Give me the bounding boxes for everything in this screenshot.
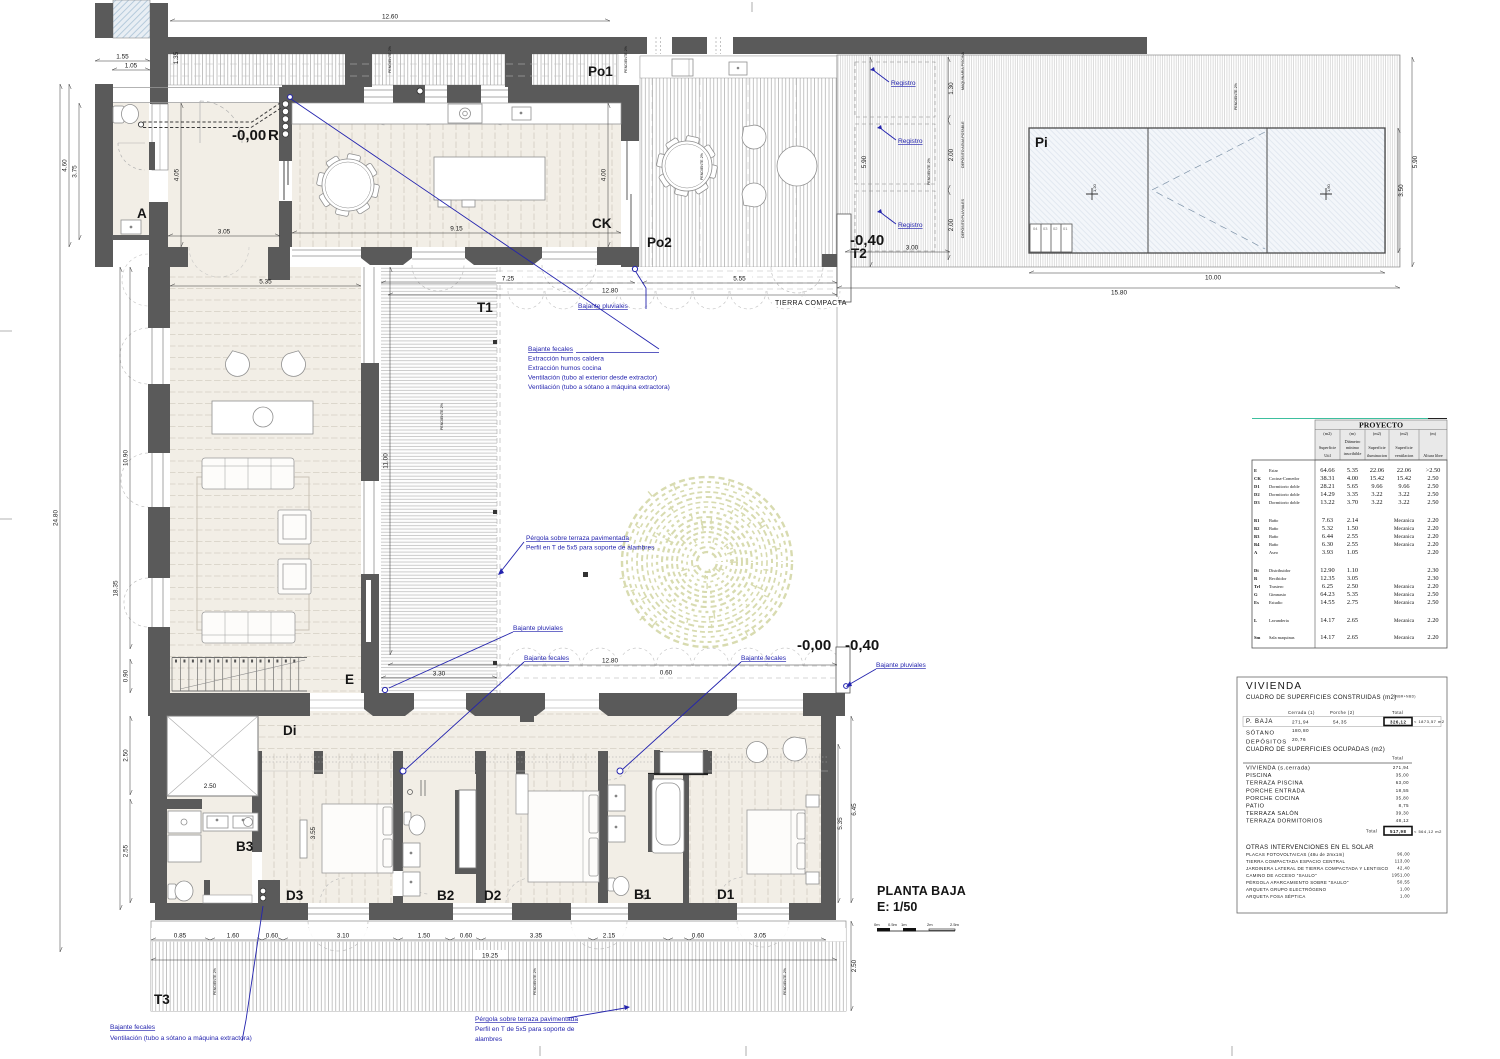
svg-text:PENDIENTE 2%: PENDIENTE 2% — [388, 45, 392, 73]
svg-text:Porche (2): Porche (2) — [1330, 710, 1355, 715]
svg-text:Bajante fecales: Bajante fecales — [741, 655, 787, 662]
svg-text:7.25: 7.25 — [502, 276, 515, 283]
svg-text:1951,00: 1951,00 — [1392, 873, 1411, 878]
svg-text:64.66: 64.66 — [1320, 467, 1334, 474]
svg-text:CUADRO DE SUPERFICIES OCUPADAS: CUADRO DE SUPERFICIES OCUPADAS (m2) — [1246, 746, 1385, 753]
svg-text:D1: D1 — [1254, 484, 1260, 489]
svg-text:3.22: 3.22 — [1371, 491, 1382, 498]
svg-text:inscribible: inscribible — [1344, 451, 1362, 456]
svg-text:B3: B3 — [1254, 534, 1260, 539]
svg-text:2.50: 2.50 — [851, 959, 858, 972]
svg-text:Registro: Registro — [891, 80, 916, 87]
svg-text:6.45: 6.45 — [851, 803, 858, 816]
svg-text:P. BAJA: P. BAJA — [1246, 719, 1273, 725]
svg-text:VIVIENDA: VIVIENDA — [1246, 681, 1302, 692]
svg-text:CK: CK — [1254, 476, 1261, 481]
svg-text:3.05: 3.05 — [754, 933, 767, 940]
svg-text:E: 1/50: E: 1/50 — [877, 900, 917, 914]
svg-text:12.35: 12.35 — [1320, 575, 1334, 582]
svg-text:Sm: Sm — [1254, 635, 1261, 640]
svg-text:2.50: 2.50 — [123, 749, 130, 762]
svg-text:5.32: 5.32 — [1322, 525, 1333, 532]
svg-text:DEPÓSITO AGUA POTABLE: DEPÓSITO AGUA POTABLE — [960, 121, 965, 168]
svg-text:12.80: 12.80 — [602, 288, 618, 295]
svg-text:5.35: 5.35 — [1347, 591, 1358, 598]
svg-text:PENDIENTE 2%: PENDIENTE 2% — [440, 402, 444, 430]
svg-text:0.60: 0.60 — [266, 933, 279, 940]
svg-text:50,55: 50,55 — [1397, 880, 1410, 885]
svg-text:1.10: 1.10 — [1347, 567, 1358, 574]
svg-text:Po2: Po2 — [647, 235, 672, 250]
svg-text:9.66: 9.66 — [1398, 483, 1409, 490]
svg-text:15.42: 15.42 — [1397, 475, 1411, 482]
svg-text:Cocina-Comedor: Cocina-Comedor — [1269, 476, 1300, 481]
svg-text:2.14: 2.14 — [1347, 517, 1359, 524]
svg-text:PLANTA BAJA: PLANTA BAJA — [877, 884, 966, 898]
svg-text:2.55: 2.55 — [1347, 533, 1358, 540]
svg-text:< 1873,57 m2: < 1873,57 m2 — [1414, 719, 1445, 724]
svg-text:PENDIENTE 2%: PENDIENTE 2% — [700, 152, 704, 180]
svg-text:11.00: 11.00 — [383, 453, 390, 469]
svg-text:5.90: 5.90 — [861, 155, 868, 168]
svg-text:E: E — [345, 672, 354, 687]
svg-text:5.55: 5.55 — [733, 276, 746, 283]
svg-text:1.05: 1.05 — [125, 63, 138, 70]
svg-text:-0,00: -0,00 — [232, 127, 266, 144]
svg-text:4.60: 4.60 — [62, 159, 69, 172]
svg-text:6.30: 6.30 — [1322, 541, 1333, 548]
svg-text:1,00: 1,00 — [1400, 894, 1410, 899]
svg-text:14.29: 14.29 — [1320, 491, 1334, 498]
svg-text:2.30: 2.30 — [1427, 575, 1438, 582]
svg-text:14.17: 14.17 — [1320, 634, 1335, 641]
svg-text:Ventilación (tubo a sótano a m: Ventilación (tubo a sótano a máquina ext… — [110, 1035, 252, 1042]
svg-text:DEPÓSITOS: DEPÓSITOS — [1246, 739, 1287, 746]
svg-text:Ventilación (tubo a sótano a m: Ventilación (tubo a sótano a máquina ext… — [528, 384, 670, 391]
svg-text:1.50: 1.50 — [418, 933, 431, 940]
svg-text:13.22: 13.22 — [1320, 499, 1334, 506]
svg-text:Bajante fecales: Bajante fecales — [524, 655, 570, 662]
svg-text:0.60: 0.60 — [460, 933, 473, 940]
svg-text:-0,40: -0,40 — [845, 637, 879, 654]
svg-text:PLACAS FOTOVOLTAICAS (48u de 2: PLACAS FOTOVOLTAICAS (48u de 2mx1m) — [1246, 852, 1345, 857]
svg-text:2.20: 2.20 — [1427, 517, 1438, 524]
svg-text:TERRAZA DORMITORIOS: TERRAZA DORMITORIOS — [1246, 819, 1323, 825]
svg-text:2.50: 2.50 — [1427, 591, 1438, 598]
svg-text:Dormitorio doble: Dormitorio doble — [1269, 492, 1300, 497]
svg-text:D3: D3 — [1254, 500, 1260, 505]
svg-text:2.50: 2.50 — [1427, 475, 1438, 482]
svg-text:3.22: 3.22 — [1398, 491, 1409, 498]
svg-text:54,35: 54,35 — [1333, 720, 1347, 725]
svg-text:(m): (m) — [1430, 431, 1437, 436]
svg-text:2.55: 2.55 — [123, 844, 130, 857]
svg-text:R: R — [268, 127, 279, 144]
svg-text:9.15: 9.15 — [450, 226, 463, 233]
svg-text:Total: Total — [1392, 756, 1403, 761]
svg-text:B3: B3 — [236, 839, 254, 854]
svg-text:1.05: 1.05 — [1347, 549, 1358, 556]
svg-text:10.90: 10.90 — [123, 450, 130, 466]
svg-text:Baño: Baño — [1269, 526, 1279, 531]
svg-text:B2: B2 — [1254, 526, 1260, 531]
svg-text:5.35: 5.35 — [259, 279, 272, 286]
svg-text:Bajante fecales: Bajante fecales — [528, 346, 574, 353]
svg-text:39,30: 39,30 — [1396, 811, 1409, 816]
svg-text:0.90: 0.90 — [123, 669, 130, 682]
svg-text:3.93: 3.93 — [1322, 549, 1333, 556]
svg-text:28.21: 28.21 — [1320, 483, 1334, 490]
svg-text:CUADRO DE SUPERFICIES CONSTRUI: CUADRO DE SUPERFICIES CONSTRUIDAS (m2) — [1246, 694, 1397, 701]
svg-text:Total: Total — [1366, 829, 1377, 834]
svg-text:12.90: 12.90 — [1320, 567, 1334, 574]
svg-text:mínimo: mínimo — [1346, 445, 1359, 450]
svg-text:0.60: 0.60 — [692, 933, 705, 940]
svg-text:PENDIENTE 2%: PENDIENTE 2% — [624, 45, 628, 73]
svg-text:2.50: 2.50 — [204, 783, 217, 790]
svg-text:PENDIENTE 2%: PENDIENTE 2% — [1234, 82, 1238, 110]
svg-text:8,75: 8,75 — [1399, 803, 1409, 808]
svg-text:Pi: Pi — [1035, 135, 1048, 150]
svg-text:3.55: 3.55 — [310, 826, 317, 839]
svg-text:PROYECTO: PROYECTO — [1359, 421, 1403, 430]
svg-text:CAMINO DE ACCESO "SAULO": CAMINO DE ACCESO "SAULO" — [1246, 873, 1317, 878]
svg-text:Bajante fecales: Bajante fecales — [110, 1024, 156, 1031]
svg-text:Gimnasio: Gimnasio — [1269, 592, 1287, 597]
svg-text:1.35: 1.35 — [173, 51, 180, 64]
svg-text:64.23: 64.23 — [1320, 591, 1334, 598]
svg-text:02: 02 — [1053, 226, 1058, 231]
svg-text:2.55: 2.55 — [1347, 541, 1358, 548]
svg-text:T1: T1 — [477, 300, 493, 315]
svg-text:L: L — [1254, 618, 1257, 623]
svg-text:Superficie: Superficie — [1319, 445, 1336, 450]
svg-text:Baño: Baño — [1269, 534, 1279, 539]
svg-text:PORCHE ENTRADA: PORCHE ENTRADA — [1246, 788, 1305, 794]
svg-text:14.55: 14.55 — [1320, 599, 1334, 606]
svg-text:Extracción humos caldera: Extracción humos caldera — [528, 356, 604, 363]
svg-text:326,12: 326,12 — [1390, 720, 1406, 725]
svg-text:Sala maquinas: Sala maquinas — [1269, 635, 1295, 640]
svg-text:Mecanica: Mecanica — [1394, 618, 1415, 624]
svg-text:2.50: 2.50 — [1347, 583, 1358, 590]
svg-text:42,40: 42,40 — [1397, 866, 1410, 871]
svg-text:2m: 2m — [927, 922, 933, 927]
svg-text:113,00: 113,00 — [1395, 859, 1410, 864]
svg-text:0.60: 0.60 — [660, 670, 673, 677]
svg-text:Registro: Registro — [898, 138, 923, 145]
svg-text:Altura libre: Altura libre — [1423, 453, 1443, 458]
svg-text:35,00: 35,00 — [1396, 773, 1409, 778]
svg-text:4.00: 4.00 — [601, 168, 608, 181]
svg-text:Trastero: Trastero — [1269, 584, 1284, 589]
svg-text:2.15: 2.15 — [603, 933, 616, 940]
svg-text:ARQUETA GRUPO ELECTRÓGENO: ARQUETA GRUPO ELECTRÓGENO — [1246, 887, 1327, 892]
svg-text:Lavanderia: Lavanderia — [1269, 618, 1289, 623]
svg-text:2.20: 2.20 — [1427, 549, 1438, 556]
svg-text:5.35: 5.35 — [837, 817, 844, 830]
svg-text:Pérgola sobre terraza paviment: Pérgola sobre terraza pavimentada — [475, 1016, 578, 1023]
svg-text:9.66: 9.66 — [1371, 483, 1382, 490]
svg-text:Distribuidor: Distribuidor — [1269, 568, 1291, 573]
svg-text:7.63: 7.63 — [1322, 517, 1333, 524]
svg-text:MAQUINARIA PISCINA: MAQUINARIA PISCINA — [961, 51, 965, 90]
svg-text:Dormitorio doble: Dormitorio doble — [1269, 484, 1300, 489]
svg-text:2.20: 2.20 — [1427, 634, 1438, 641]
svg-text:Es: Es — [1254, 600, 1259, 605]
svg-text:Perfil en T de 5x5 para soport: Perfil en T de 5x5 para soporte de alamb… — [526, 545, 655, 552]
svg-text:Mecanica: Mecanica — [1394, 635, 1415, 641]
svg-text:Superficie: Superficie — [1368, 445, 1385, 450]
svg-text:3.70: 3.70 — [1347, 499, 1358, 506]
svg-text:(NBR+NBD): (NBR+NBD) — [1394, 695, 1416, 699]
svg-text:Mecanica: Mecanica — [1394, 518, 1415, 524]
svg-text:22.06: 22.06 — [1370, 467, 1384, 474]
svg-text:3.22: 3.22 — [1398, 499, 1409, 506]
svg-text:Diámetro: Diámetro — [1345, 439, 1361, 444]
svg-text:2.50: 2.50 — [1427, 599, 1438, 606]
svg-text:1,60: 1,60 — [1326, 183, 1331, 192]
svg-text:alambres: alambres — [475, 1036, 503, 1043]
svg-text:3.05: 3.05 — [218, 229, 231, 236]
svg-text:6.25: 6.25 — [1322, 583, 1333, 590]
svg-text:PISCINA: PISCINA — [1246, 773, 1272, 779]
svg-text:2.30: 2.30 — [1427, 567, 1438, 574]
svg-text:Mecanica: Mecanica — [1394, 584, 1415, 590]
svg-text:TIERRA COMPACTA: TIERRA COMPACTA — [775, 300, 847, 307]
svg-text:Recibidor: Recibidor — [1269, 576, 1287, 581]
svg-text:2.65: 2.65 — [1347, 617, 1358, 624]
svg-text:G: G — [1254, 592, 1258, 597]
svg-text:3.10: 3.10 — [337, 933, 350, 940]
svg-text:DEPÓSITO PLUVIALES: DEPÓSITO PLUVIALES — [960, 198, 965, 238]
svg-text:PÉRGOLA APARCAMIENTO SOBRE "SA: PÉRGOLA APARCAMIENTO SOBRE "SAULO" — [1246, 880, 1349, 885]
svg-text:B4: B4 — [1254, 542, 1260, 547]
svg-text:18.35: 18.35 — [113, 580, 120, 596]
svg-text:04: 04 — [1033, 226, 1038, 231]
svg-text:2.20: 2.20 — [1427, 533, 1438, 540]
svg-text:4.00: 4.00 — [1347, 475, 1358, 482]
svg-text:3.30: 3.30 — [433, 671, 446, 678]
svg-text:PATIO: PATIO — [1246, 804, 1265, 810]
svg-text:B2: B2 — [437, 888, 454, 903]
svg-text:D3: D3 — [286, 888, 304, 903]
svg-text:>2.50: >2.50 — [1426, 467, 1441, 474]
svg-text:(m2): (m2) — [1323, 431, 1332, 436]
svg-text:1.55: 1.55 — [116, 54, 129, 61]
svg-text:5.35: 5.35 — [1347, 467, 1358, 474]
svg-text:PENDIENTE 2%: PENDIENTE 2% — [213, 967, 217, 995]
svg-text:3.75: 3.75 — [72, 165, 79, 178]
svg-text:Mecanica: Mecanica — [1394, 526, 1415, 532]
svg-text:OTRAS INTERVENCIONES EN EL SOL: OTRAS INTERVENCIONES EN EL SOLAR — [1246, 844, 1374, 851]
svg-text:2.50: 2.50 — [1427, 483, 1438, 490]
svg-text:10.00: 10.00 — [1205, 275, 1221, 282]
svg-text:0.85: 0.85 — [174, 933, 187, 940]
svg-text:5.65: 5.65 — [1347, 483, 1358, 490]
svg-text:1.50: 1.50 — [1347, 525, 1358, 532]
svg-text:2.65: 2.65 — [1347, 634, 1358, 641]
svg-text:Po1: Po1 — [588, 64, 613, 79]
svg-text:3.35: 3.35 — [1347, 491, 1358, 498]
svg-text:Superficie: Superficie — [1395, 445, 1412, 450]
svg-text:12.80: 12.80 — [602, 658, 618, 665]
svg-text:15.42: 15.42 — [1370, 475, 1384, 482]
svg-text:Bajante pluviales: Bajante pluviales — [876, 662, 927, 669]
svg-text:Util: Util — [1324, 453, 1331, 458]
svg-text:2.20: 2.20 — [1427, 541, 1438, 548]
svg-text:Dormitorio doble: Dormitorio doble — [1269, 500, 1300, 505]
svg-text:2.20: 2.20 — [1427, 617, 1438, 624]
svg-text:1,00: 1,00 — [1400, 887, 1410, 892]
svg-text:03: 03 — [1043, 226, 1048, 231]
svg-text:VIVIENDA (s.cerrada): VIVIENDA (s.cerrada) — [1246, 766, 1310, 772]
svg-text:TERRAZA SALÓN: TERRAZA SALÓN — [1246, 810, 1299, 817]
svg-text:3.35: 3.35 — [530, 933, 543, 940]
svg-text:A: A — [137, 206, 147, 221]
svg-text:iluminacion: iluminacion — [1367, 453, 1388, 458]
svg-text:Mecanica: Mecanica — [1394, 600, 1415, 606]
svg-text:48,12: 48,12 — [1396, 818, 1409, 823]
svg-text:ARQUETA FOSA SÉPTICA: ARQUETA FOSA SÉPTICA — [1246, 894, 1306, 899]
svg-text:JARDINERA LATERAL DE TIERRA CO: JARDINERA LATERAL DE TIERRA COMPACTADA Y… — [1246, 866, 1389, 871]
svg-text:SÓTANO: SÓTANO — [1246, 730, 1275, 737]
svg-text:Estudio: Estudio — [1269, 600, 1283, 605]
svg-text:Mecanica: Mecanica — [1394, 534, 1415, 540]
svg-text:-0,00: -0,00 — [797, 637, 831, 654]
svg-text:38.31: 38.31 — [1320, 475, 1334, 482]
svg-text:E: E — [1254, 468, 1257, 473]
svg-text:Baño: Baño — [1269, 518, 1279, 523]
svg-text:PORCHE COCINA: PORCHE COCINA — [1246, 796, 1300, 802]
svg-text:63,00: 63,00 — [1396, 780, 1409, 785]
svg-text:D2: D2 — [1254, 492, 1260, 497]
svg-text:35,80: 35,80 — [1396, 795, 1409, 800]
svg-text:180,80: 180,80 — [1292, 728, 1309, 733]
svg-text:Aseo: Aseo — [1269, 550, 1279, 555]
svg-text:Baño: Baño — [1269, 542, 1279, 547]
svg-text:2.50: 2.50 — [1427, 491, 1438, 498]
svg-text:Mecanica: Mecanica — [1394, 592, 1415, 598]
svg-text:6.44: 6.44 — [1322, 533, 1334, 540]
svg-text:Perfil en T de 5x5 para soport: Perfil en T de 5x5 para soporte de — [475, 1026, 575, 1033]
svg-text:T3: T3 — [154, 992, 170, 1007]
svg-text:Extracción humos cocina: Extracción humos cocina — [528, 365, 602, 372]
svg-text:19.25: 19.25 — [482, 953, 498, 960]
svg-text:2.50: 2.50 — [1427, 499, 1438, 506]
svg-text:TIERRA COMPACTADA ESPACIO CENT: TIERRA COMPACTADA ESPACIO CENTRAL — [1246, 859, 1345, 864]
svg-text:517,98: 517,98 — [1390, 829, 1406, 834]
svg-text:Mecanica: Mecanica — [1394, 542, 1415, 548]
svg-text:1,20: 1,20 — [1092, 183, 1097, 192]
svg-text:< 564,12 m2: < 564,12 m2 — [1414, 829, 1442, 834]
svg-text:15.80: 15.80 — [1111, 290, 1127, 297]
svg-text:3.50: 3.50 — [1398, 184, 1405, 197]
svg-text:271,94: 271,94 — [1292, 720, 1309, 725]
svg-text:22.06: 22.06 — [1397, 467, 1411, 474]
svg-text:3.22: 3.22 — [1371, 499, 1382, 506]
svg-text:2.20: 2.20 — [1427, 525, 1438, 532]
svg-text:CK: CK — [592, 216, 612, 231]
svg-text:3.05: 3.05 — [1347, 575, 1358, 582]
svg-text:Di: Di — [1254, 568, 1259, 573]
svg-text:Cerrada (1): Cerrada (1) — [1288, 710, 1315, 715]
svg-text:D2: D2 — [484, 888, 501, 903]
svg-text:(m): (m) — [1349, 431, 1356, 436]
svg-text:PENDIENTE 2%: PENDIENTE 2% — [533, 967, 537, 995]
svg-text:5.90: 5.90 — [1412, 155, 1419, 168]
svg-text:ventilacion: ventilacion — [1395, 453, 1415, 458]
svg-text:B1: B1 — [634, 887, 652, 902]
svg-text:4.05: 4.05 — [174, 168, 181, 181]
svg-text:PENDIENTE 2%: PENDIENTE 2% — [783, 967, 787, 995]
svg-text:Pérgola sobre terraza paviment: Pérgola sobre terraza pavimentada — [526, 535, 629, 542]
svg-text:D1: D1 — [717, 887, 735, 902]
svg-text:Total: Total — [1392, 710, 1403, 715]
svg-text:271,94: 271,94 — [1393, 765, 1409, 770]
svg-text:2.5m: 2.5m — [950, 922, 960, 927]
svg-text:Di: Di — [283, 723, 297, 738]
svg-text:12.60: 12.60 — [382, 14, 398, 21]
svg-text:(m2): (m2) — [1373, 431, 1382, 436]
svg-text:0m: 0m — [874, 922, 880, 927]
svg-text:14.17: 14.17 — [1320, 617, 1335, 624]
svg-text:0.5m: 0.5m — [888, 922, 898, 927]
svg-text:2.20: 2.20 — [1427, 583, 1438, 590]
svg-text:TERRAZA PISCINA: TERRAZA PISCINA — [1246, 781, 1303, 787]
svg-text:Bajante pluviales: Bajante pluviales — [513, 625, 564, 632]
svg-text:2.00: 2.00 — [948, 148, 955, 161]
svg-text:Trl: Trl — [1254, 584, 1261, 589]
svg-text:01: 01 — [1063, 226, 1068, 231]
svg-text:1.60: 1.60 — [227, 933, 240, 940]
svg-text:B1: B1 — [1254, 518, 1260, 523]
svg-text:Ventilación (tubo al exterior: Ventilación (tubo al exterior desde extr… — [528, 375, 657, 382]
svg-text:2.00: 2.00 — [948, 218, 955, 231]
svg-text:20,76: 20,76 — [1292, 737, 1306, 742]
svg-text:1m: 1m — [901, 922, 907, 927]
svg-text:Estar: Estar — [1269, 468, 1279, 473]
svg-text:24.80: 24.80 — [53, 510, 60, 526]
svg-text:96,00: 96,00 — [1397, 852, 1410, 857]
svg-text:3.00: 3.00 — [906, 245, 919, 252]
svg-text:Registro: Registro — [898, 222, 923, 229]
svg-text:2.75: 2.75 — [1347, 599, 1358, 606]
svg-text:Bajante pluviales: Bajante pluviales — [578, 303, 629, 310]
svg-text:1.30: 1.30 — [948, 82, 955, 95]
svg-text:PENDIENTE 2%: PENDIENTE 2% — [927, 157, 931, 185]
svg-text:18,55: 18,55 — [1396, 788, 1409, 793]
svg-text:(m2): (m2) — [1400, 431, 1409, 436]
